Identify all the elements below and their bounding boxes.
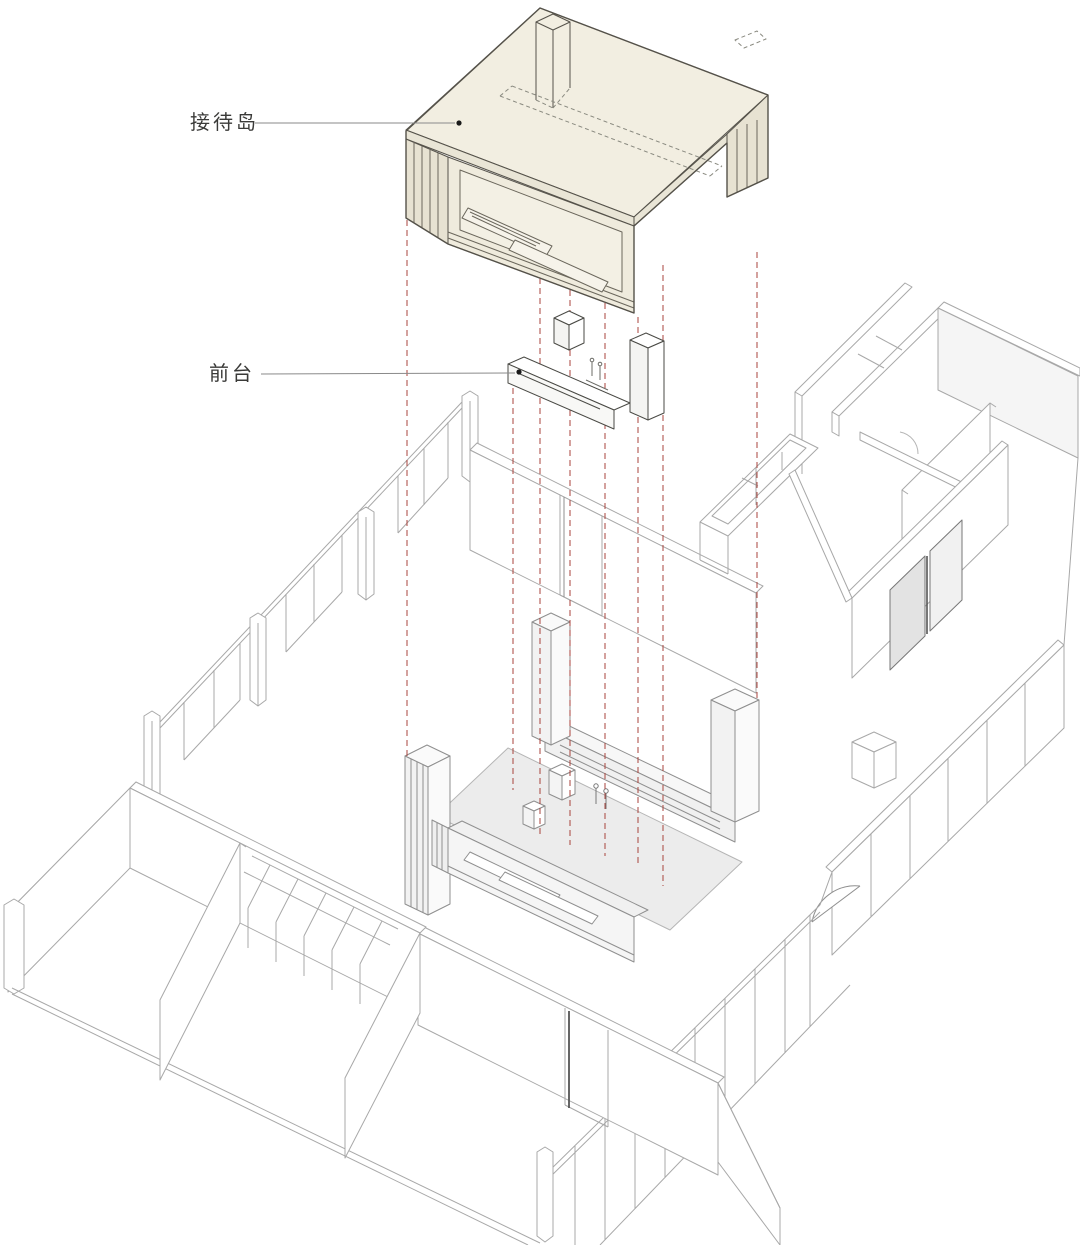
floor-plan <box>4 283 1080 1245</box>
assembly-column <box>532 613 570 745</box>
glazed-fence-northwest <box>144 391 478 806</box>
label-reception-island: 接待岛 <box>190 112 259 132</box>
diagram-drawing <box>0 0 1080 1245</box>
front-desk-volume <box>508 311 664 429</box>
exploded-axonometric-diagram: 接待岛 前台 <box>0 0 1080 1245</box>
reception-island-volume <box>406 8 768 313</box>
label-front-desk: 前台 <box>209 363 255 383</box>
island-left-slats <box>406 139 448 244</box>
leader-dot-desk <box>516 369 521 374</box>
leader-dot-island <box>456 120 461 125</box>
reception-back-wall <box>470 443 763 693</box>
assembly-right-pillar <box>711 689 759 822</box>
room-south-center <box>418 927 780 1245</box>
